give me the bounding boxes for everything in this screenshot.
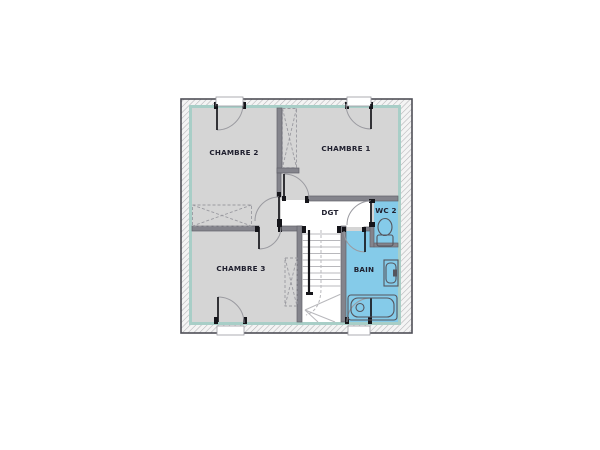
room-label-chambre1: CHAMBRE 1	[321, 144, 370, 153]
window-chambre3	[217, 326, 244, 335]
floor-plan: CHAMBRE 2 CHAMBRE 1 CHAMBRE 3 DGT WC 2 B…	[0, 0, 600, 450]
wall-closet-ch1	[277, 168, 299, 173]
sink-tap	[393, 270, 397, 277]
room-label-chambre3: CHAMBRE 3	[216, 264, 265, 273]
wall-stairs-bain	[341, 226, 346, 322]
wall-ch2-ch1	[277, 108, 282, 173]
wall-ch2-ch3	[192, 226, 259, 231]
wall-dgt-wc2	[370, 226, 374, 247]
wall-ch3-stairs	[297, 226, 302, 322]
room-label-wc2: WC 2	[375, 206, 397, 215]
room-label-chambre2: CHAMBRE 2	[209, 148, 258, 157]
room-label-bain: BAIN	[354, 265, 375, 274]
window-chambre2	[216, 97, 243, 106]
stair-handrail-end	[306, 292, 313, 295]
room-label-dgt: DGT	[321, 208, 338, 217]
window-chambre1	[347, 97, 371, 106]
window-bain	[348, 326, 370, 335]
wall-ch1-dgt	[308, 196, 398, 201]
